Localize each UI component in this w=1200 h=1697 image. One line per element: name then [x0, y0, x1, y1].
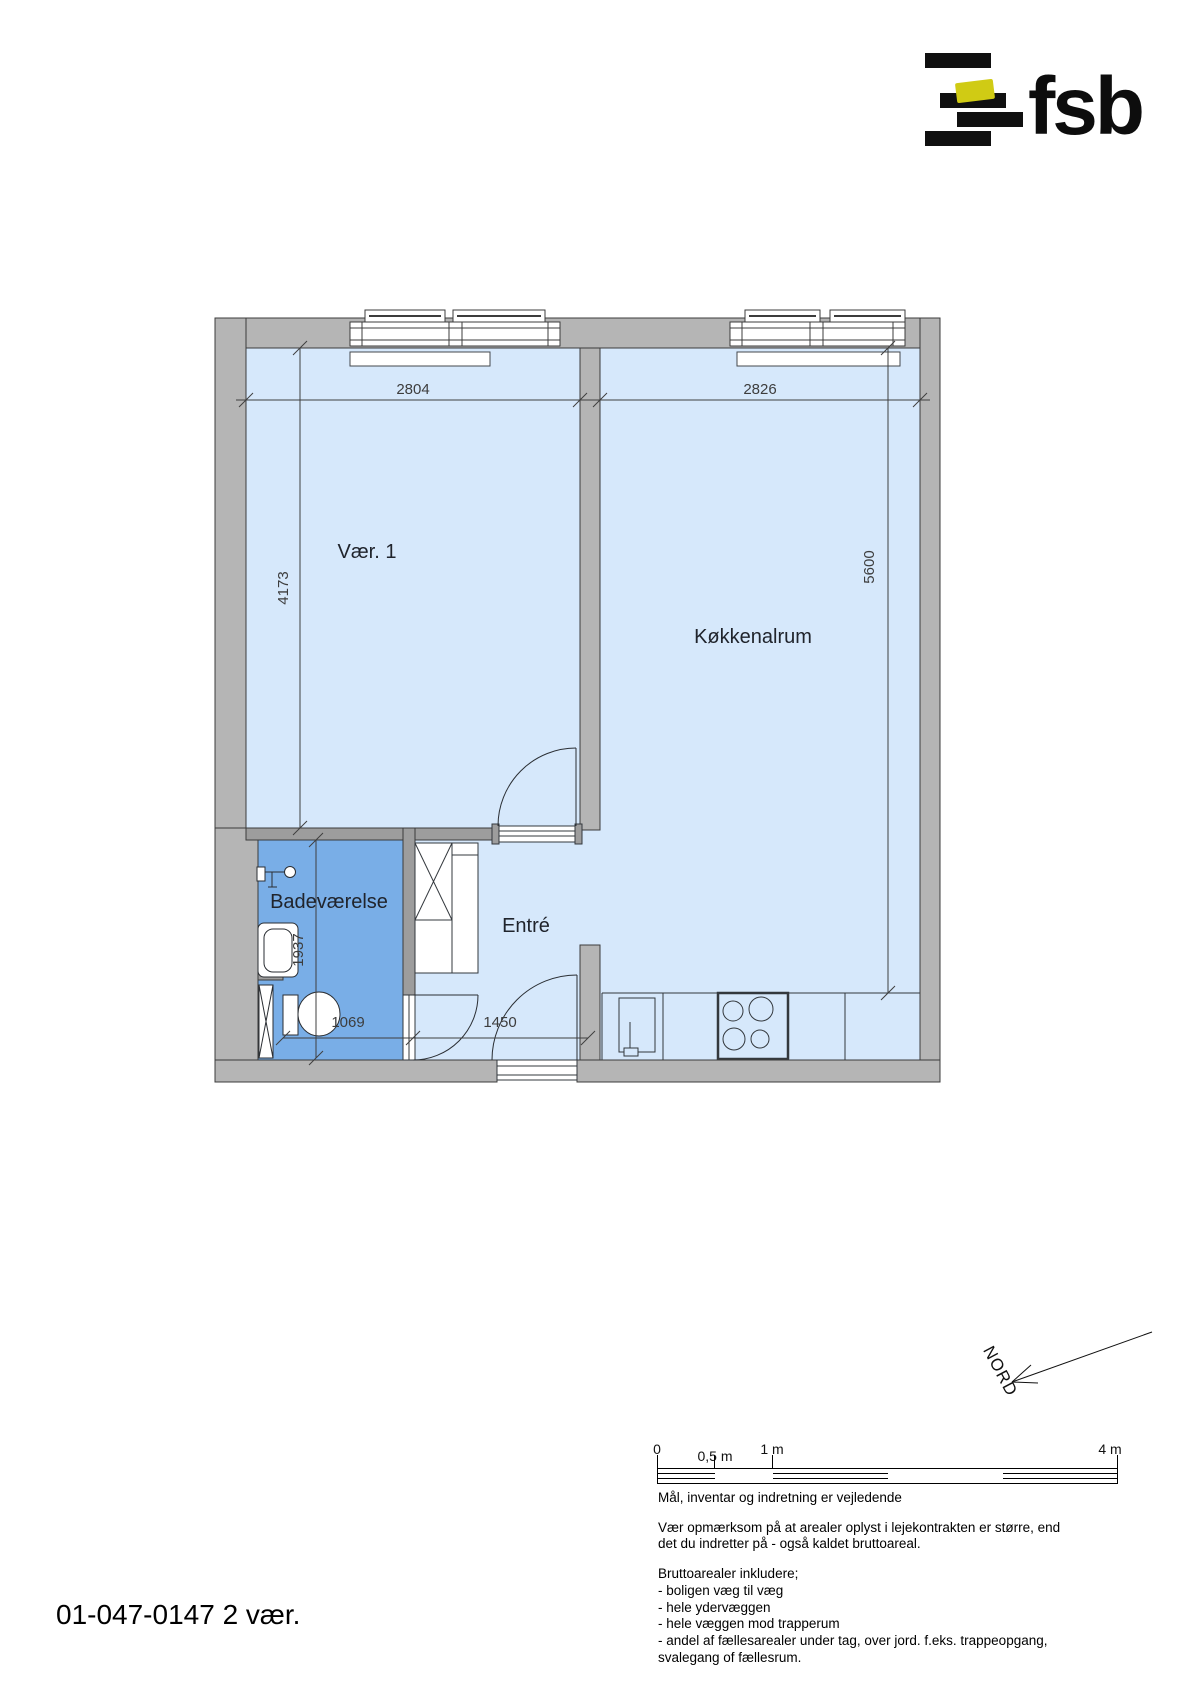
north-arrow-icon [1000, 1318, 1160, 1396]
door-sill-entrance [497, 1060, 577, 1080]
wall-bottom-right [577, 1060, 940, 1082]
scale-segment [715, 1469, 773, 1483]
door-post-icon [492, 824, 499, 844]
room-label-room1: Vær. 1 [338, 541, 397, 563]
scale-segment [888, 1469, 1003, 1483]
note-paragraph: Bruttoarealer inkludere; - boligen væg t… [658, 1566, 1200, 1666]
logo-wordmark: fsb [1028, 66, 1142, 148]
wall-left-upper [215, 318, 246, 828]
wall-bath-top [246, 828, 415, 840]
wall-middle [580, 348, 600, 830]
logo-bar-icon [925, 131, 991, 146]
note-line: Vær opmærksom på at arealer oplyst i lej… [658, 1520, 1200, 1537]
door-post-icon [575, 824, 582, 844]
note-line: - boligen væg til væg [658, 1583, 1200, 1600]
note-line: - andel af fællesarealer under tag, over… [658, 1633, 1200, 1650]
wardrobe [415, 843, 478, 973]
note-line: Mål, inventar og indretning er vejledend… [658, 1490, 1200, 1507]
room-label-bathroom: Badeværelse [270, 891, 388, 913]
kitchen-faucet-icon [624, 1048, 638, 1056]
vent-shaft [259, 985, 273, 1058]
dim-bath-width: 1069 [331, 1014, 364, 1031]
scale-segment [773, 1469, 888, 1483]
dim-room2-width: 2826 [743, 381, 776, 398]
dim-room1-width: 2804 [396, 381, 429, 398]
scale-segment [658, 1469, 715, 1483]
door-sill-room1 [497, 826, 577, 842]
wall-bath-right [403, 828, 415, 995]
scale-tick [1117, 1455, 1118, 1468]
note-line: - hele væggen mod trapperum [658, 1616, 1200, 1633]
room-label-entry: Entré [502, 915, 550, 937]
wall-bottom-left [215, 1060, 497, 1082]
scale-tick [657, 1455, 658, 1468]
room-label-kitchen: Køkkenalrum [694, 626, 812, 648]
scale-tick [714, 1455, 715, 1468]
wall-left-lower [215, 828, 258, 1082]
window-1 [350, 310, 560, 346]
fsb-logo: fsb [920, 48, 1150, 158]
note-line: - hele ydervæggen [658, 1600, 1200, 1617]
dim-room1-height: 4173 [275, 571, 292, 604]
note-line: svalegang of fællesrum. [658, 1650, 1200, 1667]
dim-room2-height: 5600 [861, 550, 878, 583]
scale-label-4: 4 m [1098, 1441, 1121, 1457]
scale-tick [772, 1455, 773, 1468]
notes-block: Mål, inventar og indretning er vejledend… [658, 1490, 1200, 1680]
page: fsb [0, 0, 1200, 1697]
wall-entry-top [415, 828, 497, 840]
dim-entry-width: 1450 [483, 1014, 516, 1031]
scale-label-05: 0,5 m [697, 1448, 732, 1464]
note-line: det du indretter på - også kaldet brutto… [658, 1536, 1200, 1553]
wall-right [920, 318, 940, 1082]
logo-bar-icon [925, 53, 991, 68]
radiator [350, 352, 490, 366]
window-2 [730, 310, 905, 346]
scale-segment [1003, 1469, 1117, 1483]
note-paragraph: Vær opmærksom på at arealer oplyst i lej… [658, 1520, 1200, 1553]
apartment-id: 01-047-0147 2 vær. [56, 1599, 300, 1631]
radiator [737, 352, 900, 366]
floor-plan: 2804 2826 4173 5600 1937 1069 1450 Vær. … [200, 295, 960, 1095]
dim-bath-height: 1937 [290, 933, 307, 966]
note-line: Bruttoarealer inkludere; [658, 1566, 1200, 1583]
logo-bar-icon [957, 112, 1023, 127]
scale-bar [657, 1468, 1118, 1484]
